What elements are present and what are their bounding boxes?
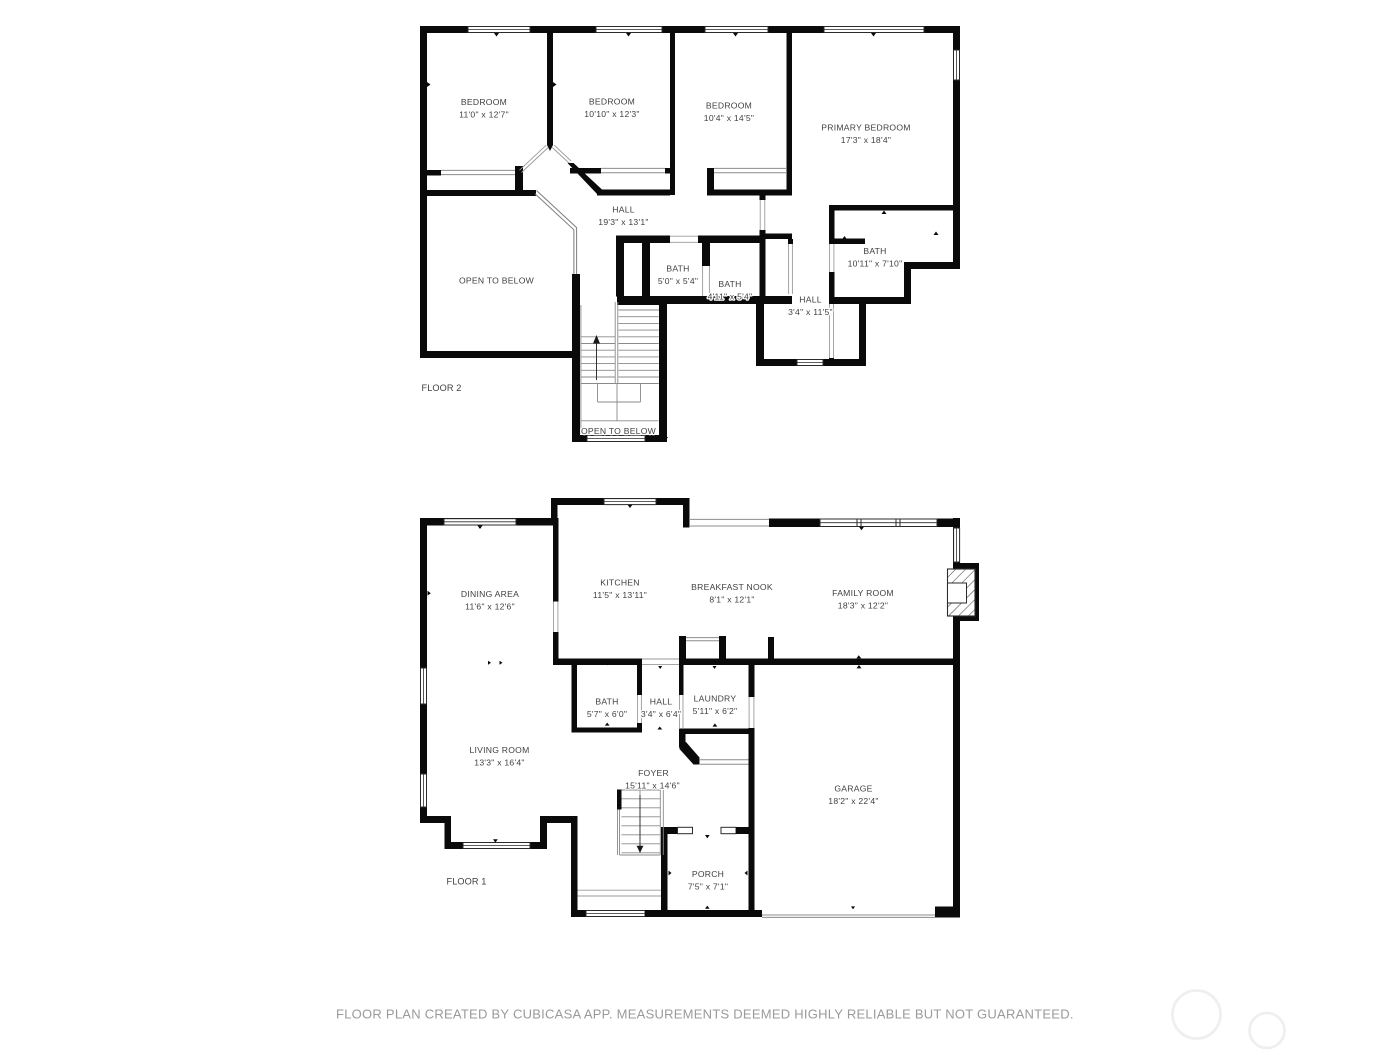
svg-text:BEDROOM: BEDROOM xyxy=(706,100,752,110)
svg-text:15'11" x 14'6": 15'11" x 14'6" xyxy=(625,781,680,791)
svg-text:5'0" x 5'4": 5'0" x 5'4" xyxy=(658,276,698,286)
svg-text:5'11" x 6'2": 5'11" x 6'2" xyxy=(693,706,738,716)
svg-text:LIVING ROOM: LIVING ROOM xyxy=(469,745,529,755)
svg-text:FLOOR 2: FLOOR 2 xyxy=(422,383,462,393)
svg-text:HALL: HALL xyxy=(650,697,673,707)
svg-text:OPEN TO BELOW: OPEN TO BELOW xyxy=(459,275,535,285)
svg-text:BATH: BATH xyxy=(863,246,886,256)
svg-text:5'7" x 6'0": 5'7" x 6'0" xyxy=(587,709,627,719)
svg-text:PORCH: PORCH xyxy=(692,869,724,879)
svg-text:PRIMARY BEDROOM: PRIMARY BEDROOM xyxy=(821,122,910,132)
svg-text:13'3" x 16'4": 13'3" x 16'4" xyxy=(474,758,524,768)
svg-text:KITCHEN: KITCHEN xyxy=(600,578,639,588)
svg-text:11'5" x 13'11": 11'5" x 13'11" xyxy=(593,590,647,600)
svg-text:FAMILY ROOM: FAMILY ROOM xyxy=(832,588,894,598)
svg-text:LAUNDRY: LAUNDRY xyxy=(694,694,737,704)
svg-text:18'3" x 12'2": 18'3" x 12'2" xyxy=(838,601,888,611)
svg-text:BATH: BATH xyxy=(666,263,689,273)
svg-text:BATH: BATH xyxy=(595,697,618,707)
svg-text:10'4" x 14'5": 10'4" x 14'5" xyxy=(704,113,754,123)
svg-text:BREAKFAST NOOK: BREAKFAST NOOK xyxy=(691,582,773,592)
svg-text:BATH: BATH xyxy=(718,279,741,289)
svg-text:DINING AREA: DINING AREA xyxy=(461,589,519,599)
svg-text:10'10" x 12'3": 10'10" x 12'3" xyxy=(584,109,639,119)
svg-text:11'6" x 12'6": 11'6" x 12'6" xyxy=(465,602,515,612)
svg-text:GARAGE: GARAGE xyxy=(834,784,872,794)
svg-text:BEDROOM: BEDROOM xyxy=(461,97,507,107)
svg-text:11'0" x 12'7": 11'0" x 12'7" xyxy=(459,109,509,119)
svg-text:FLOOR PLAN CREATED BY CUBICASA: FLOOR PLAN CREATED BY CUBICASA APP. MEAS… xyxy=(336,1006,1074,1021)
svg-text:BEDROOM: BEDROOM xyxy=(589,96,635,106)
svg-text:HALL: HALL xyxy=(612,204,635,214)
svg-text:4'11" x 5'4": 4'11" x 5'4" xyxy=(708,292,753,302)
svg-text:OPEN TO BELOW: OPEN TO BELOW xyxy=(581,426,657,436)
svg-text:18'2" x 22'4": 18'2" x 22'4" xyxy=(828,796,878,806)
svg-text:19'3" x 13'1": 19'3" x 13'1" xyxy=(598,217,648,227)
svg-text:HALL: HALL xyxy=(799,294,822,304)
svg-text:8'1" x 12'1": 8'1" x 12'1" xyxy=(709,595,754,605)
svg-text:7'5" x 7'1": 7'5" x 7'1" xyxy=(688,882,728,892)
svg-text:3'4" x 6'4": 3'4" x 6'4" xyxy=(641,709,681,719)
svg-text:3'4" x 11'5": 3'4" x 11'5" xyxy=(788,307,833,317)
svg-text:17'3" x 18'4": 17'3" x 18'4" xyxy=(841,135,891,145)
svg-text:10'11" x 7'10": 10'11" x 7'10" xyxy=(848,259,903,269)
svg-text:FOYER: FOYER xyxy=(638,768,669,778)
svg-text:FLOOR 1: FLOOR 1 xyxy=(447,877,487,887)
